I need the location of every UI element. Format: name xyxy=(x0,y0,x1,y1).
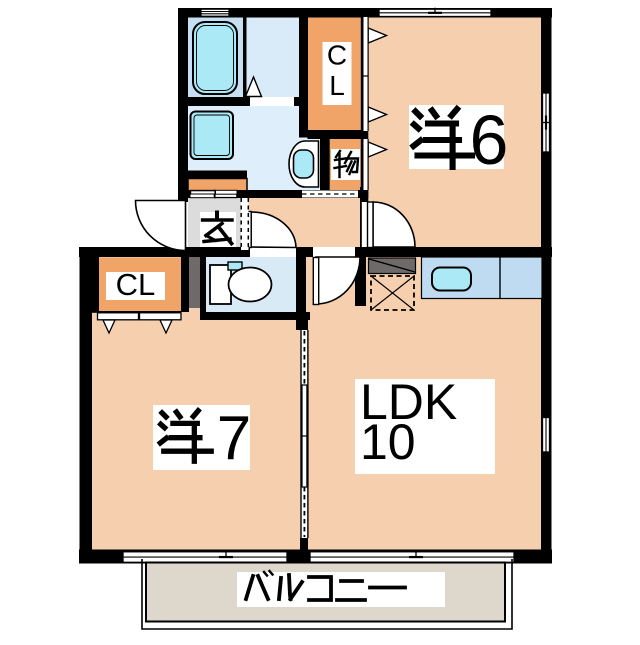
svg-text:C: C xyxy=(327,40,347,71)
svg-text:L: L xyxy=(329,70,345,101)
svg-text:6: 6 xyxy=(470,101,509,179)
svg-text:10: 10 xyxy=(360,414,416,470)
svg-text:CL: CL xyxy=(116,267,156,302)
svg-text:7: 7 xyxy=(217,404,251,473)
